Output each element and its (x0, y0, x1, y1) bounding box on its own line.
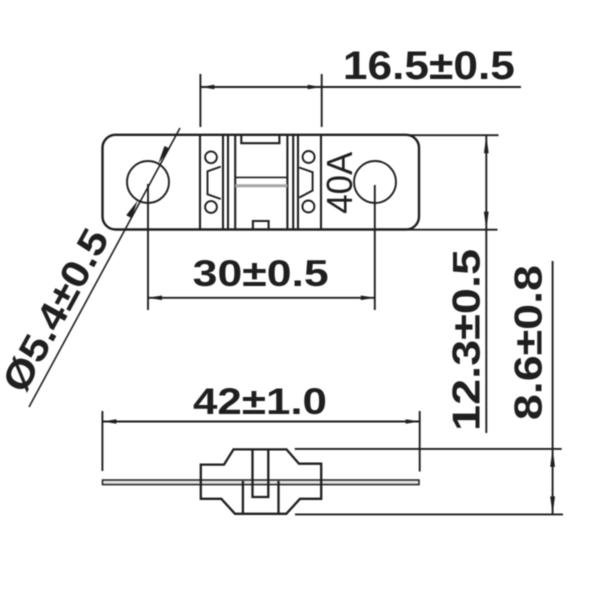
svg-text:8.6±0.8: 8.6±0.8 (508, 265, 551, 420)
svg-text:16.5±0.5: 16.5±0.5 (343, 44, 515, 88)
svg-text:42±1.0: 42±1.0 (193, 380, 327, 422)
svg-text:30±0.5: 30±0.5 (193, 253, 329, 294)
svg-text:40A: 40A (319, 152, 360, 214)
svg-text:12.3±0.5: 12.3±0.5 (445, 249, 488, 431)
